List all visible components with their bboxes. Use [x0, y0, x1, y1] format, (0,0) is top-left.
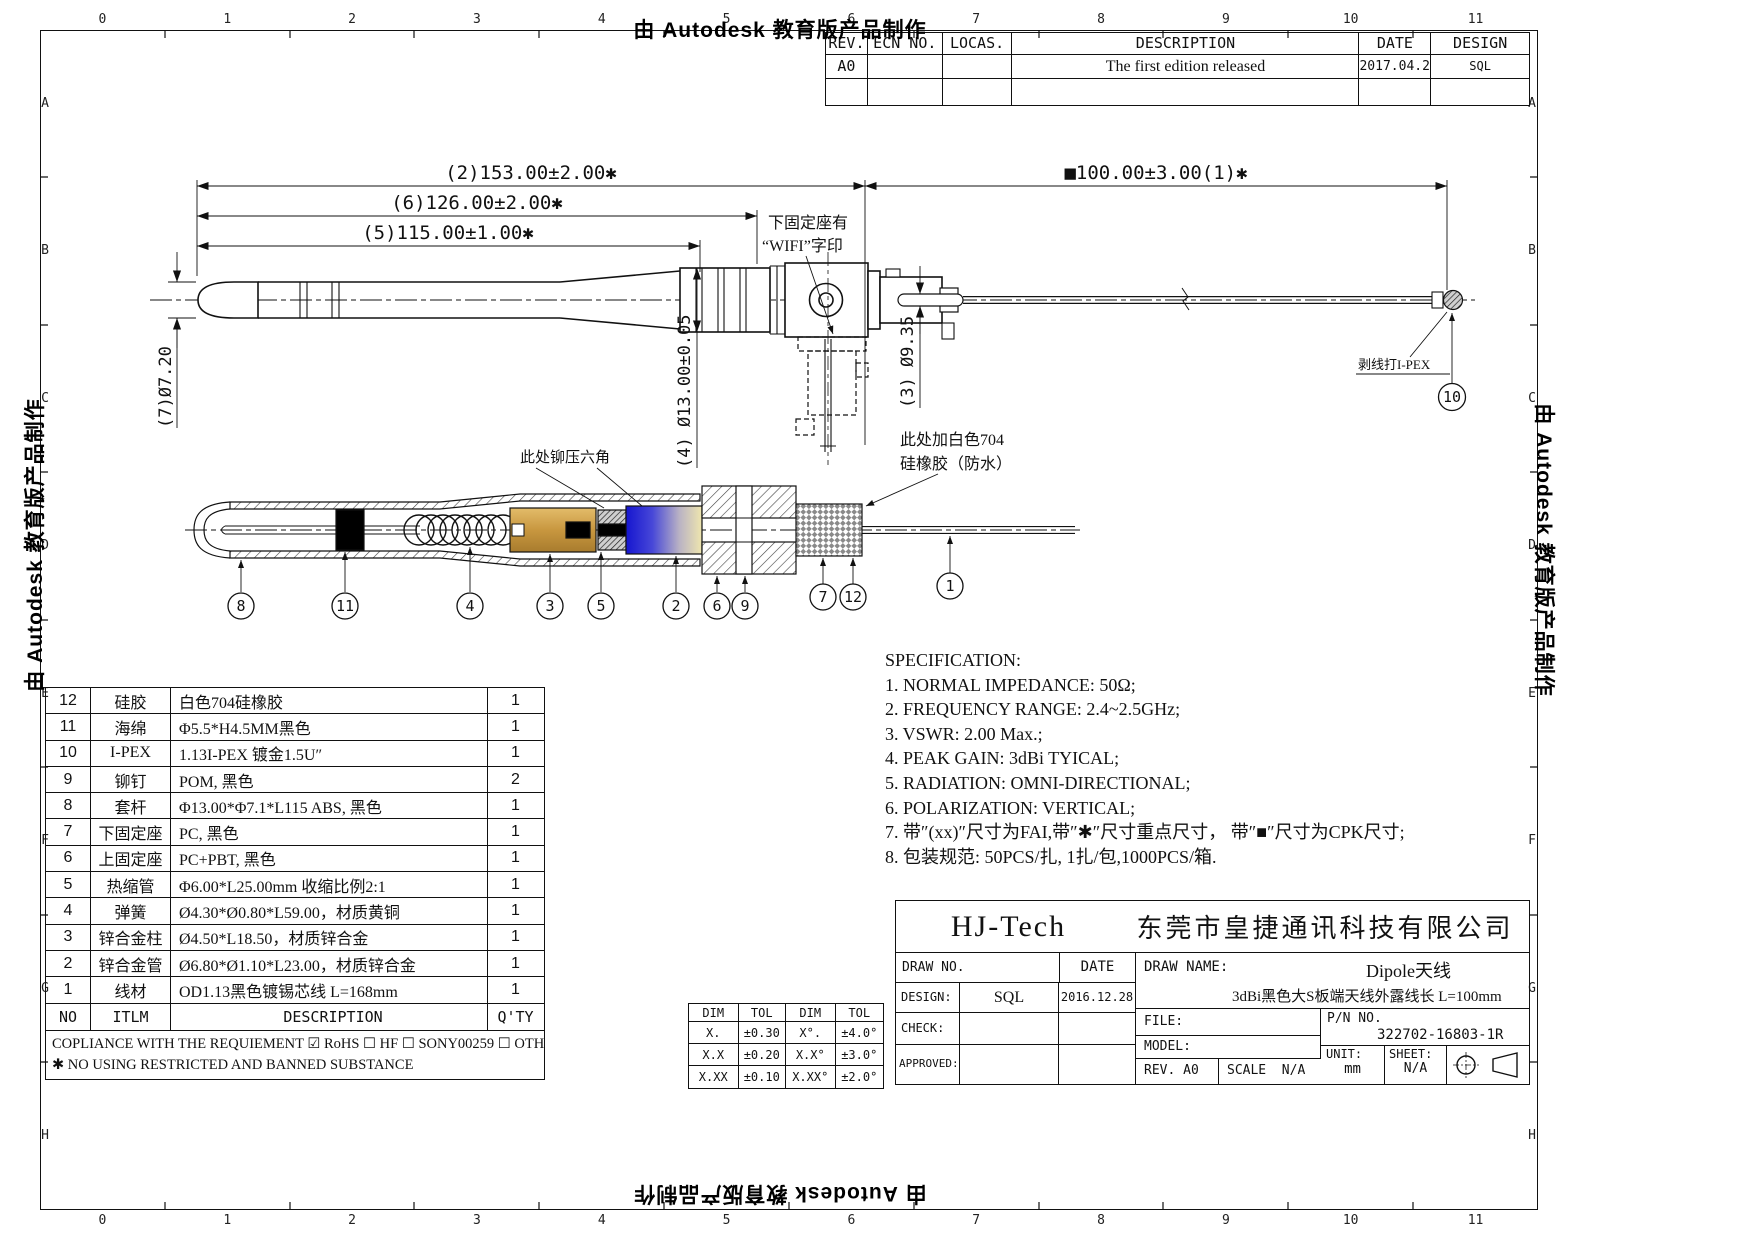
revision-col-date: DATE: [1359, 33, 1431, 55]
connector-bump: [886, 269, 900, 277]
projection-symbol-cell: [1447, 1046, 1529, 1084]
company-full-name: 东莞市皇捷通讯科技有限公司: [1121, 908, 1529, 945]
balloon-label: 7: [818, 588, 827, 606]
tol-cell: ±0.20: [739, 1044, 787, 1065]
unit-value: mm: [1321, 1061, 1384, 1077]
draw-no-label: DRAW NO.: [896, 953, 1060, 982]
bom-item: I-PEX: [91, 741, 171, 766]
projection-symbol: [1451, 1049, 1525, 1081]
file-label: FILE:: [1136, 1009, 1321, 1036]
dim-9-35: (3) Ø9.35: [898, 316, 918, 408]
autodesk-watermark-right: 由 Autodesk 教育版产品制作: [1534, 370, 1560, 730]
rev-scale-row: REV. A0 SCALE N/A: [1136, 1059, 1321, 1084]
bom-qty: 1: [488, 793, 543, 818]
tol-cell: X.XX°: [786, 1066, 836, 1088]
balloon-label: 8: [236, 597, 245, 615]
bom-item: 套杆: [91, 793, 171, 818]
unit-sheet-row: UNIT: mm SHEET: N/A: [1321, 1046, 1529, 1084]
tolerance-table: DIMTOLDIMTOL X.±0.30X°.±4.0° X.X±0.20X.X…: [688, 1003, 884, 1089]
bom-table: 12硅胶白色704硅橡胶1 11海绵Φ5.5*H4.5MM黑色1 10I-PEX…: [45, 687, 545, 1080]
bom-item: 弹簧: [91, 898, 171, 923]
model-label: MODEL:: [1136, 1036, 1321, 1059]
bom-row: 12硅胶白色704硅橡胶1: [46, 688, 544, 714]
spec-item: 2. FREQUENCY RANGE: 2.4~2.5GHz;: [885, 697, 1485, 722]
revision-locas: [943, 55, 1013, 79]
autodesk-watermark-left: 由 Autodesk 教育版产品制作: [19, 365, 45, 725]
bom-header-no: NO: [46, 1004, 91, 1030]
balloon-label: 2: [671, 597, 680, 615]
tol-cell: ±3.0°: [836, 1044, 884, 1065]
approved-row: APPROVED:: [896, 1045, 1136, 1084]
pn-value: 322702-16803-1R: [1377, 1027, 1503, 1043]
revision-design: SQL: [1431, 55, 1529, 79]
bom-item: 硅胶: [91, 688, 171, 713]
rev-cell: REV. A0: [1136, 1059, 1219, 1084]
revision-col-description: DESCRIPTION: [1012, 33, 1359, 55]
balloon-1: 1: [937, 536, 963, 599]
bom-qty: 1: [488, 925, 543, 950]
bom-item: 下固定座: [91, 819, 171, 844]
bom-row: 10I-PEX1.13I-PEX 镀金1.5U″1: [46, 741, 544, 767]
design-date: 2016.12.28: [1059, 983, 1135, 1012]
bom-row: 4弹簧Ø4.30*Ø0.80*L59.00，材质黄铜1: [46, 898, 544, 924]
revision-row: A0 The first edition released 2017.04.21…: [826, 55, 1529, 79]
bom-row: 2锌合金管Ø6.80*Ø1.10*L23.00，材质锌合金1: [46, 951, 544, 977]
antenna-side-view: [150, 252, 1475, 465]
zinc-column-core: [566, 522, 590, 538]
tol-cell: X.: [689, 1022, 739, 1043]
balloon-8: 8: [228, 560, 254, 619]
revision-ecn: [868, 55, 943, 79]
bom-no: 9: [46, 767, 91, 792]
bom-desc: 白色704硅橡胶: [171, 688, 488, 713]
silicone-note-line2: 硅橡胶（防水）: [900, 455, 1012, 473]
lower-fixing-seat: [796, 337, 868, 435]
revision-col-design: DESIGN: [1431, 33, 1529, 55]
spec-item: 7. 带″(xx)″尺寸为FAI,带″✱″尺寸重点尺寸， 带″■″尺寸为CPK尺…: [885, 820, 1485, 845]
cable-lug: [898, 294, 963, 306]
pn-cell: P/N NO. 322702-16803-1R: [1321, 1009, 1529, 1046]
bom-row: 9铆钉POM, 黑色2: [46, 767, 544, 793]
bom-qty: 1: [488, 898, 543, 923]
dim-100: ■100.00±3.00(1)✱: [1064, 162, 1247, 184]
bom-no: 12: [46, 688, 91, 713]
scale-value: N/A: [1282, 1063, 1305, 1078]
company-short-name: HJ-Tech: [896, 910, 1121, 944]
specification-title: SPECIFICATION:: [885, 648, 1485, 673]
bom-no: 8: [46, 793, 91, 818]
revision-rev: A0: [826, 55, 868, 79]
bom-desc: 1.13I-PEX 镀金1.5U″: [171, 741, 488, 766]
bom-desc: Φ13.00*Φ7.1*L115 ABS, 黑色: [171, 793, 488, 818]
balloon-7: 7: [810, 558, 836, 610]
balloon-label: 5: [596, 597, 605, 615]
bom-item: 热缩管: [91, 872, 171, 897]
tol-cell: ±4.0°: [836, 1022, 884, 1043]
balloon-label: 12: [844, 588, 862, 606]
tol-cell: ±0.10: [739, 1066, 787, 1088]
ipex-connector: [1444, 291, 1463, 310]
spec-item: 3. VSWR: 2.00 Max.;: [885, 722, 1485, 747]
pn-label: P/N NO.: [1327, 1011, 1382, 1026]
compliance-note: COPLIANCE WITH THE REQUIEMENT ☑ RoHS ☐ H…: [46, 1031, 544, 1079]
tol-cell: ±2.0°: [836, 1066, 884, 1088]
dim-7-20: (7)Ø7.20: [156, 346, 176, 428]
title-block: HJ-Tech 东莞市皇捷通讯科技有限公司 DRAW NO. DATE DESI…: [895, 900, 1530, 1085]
tolerance-header: DIMTOLDIMTOL: [689, 1004, 883, 1022]
check-date: [1059, 1013, 1135, 1044]
engineering-drawing-sheet: 01234567891011 01234567891011 ABCDEFGH A…: [0, 0, 1755, 1241]
bom-qty: 1: [488, 846, 543, 871]
approved-value: [960, 1045, 1059, 1084]
design-label: DESIGN:: [896, 983, 960, 1012]
bom-row: 5热缩管Φ6.00*L25.00mm 收缩比例2:11: [46, 872, 544, 898]
ipex-note: 剥线打I-PEX: [1358, 357, 1431, 372]
spec-item: 4. PEAK GAIN: 3dBi TYICAL;: [885, 746, 1485, 771]
antenna-section-view: [185, 486, 1080, 574]
bom-qty: 1: [488, 741, 543, 766]
scale-cell: SCALE N/A: [1219, 1059, 1321, 1084]
balloon-label: 3: [545, 597, 554, 615]
company-row: HJ-Tech 东莞市皇捷通讯科技有限公司: [896, 901, 1529, 953]
bom-desc: Φ6.00*L25.00mm 收缩比例2:1: [171, 872, 488, 897]
bom-qty: 1: [488, 714, 543, 739]
bom-desc: Ø4.30*Ø0.80*L59.00，材质黄铜: [171, 898, 488, 923]
revision-date: 2017.04.21: [1359, 55, 1431, 79]
check-label: CHECK:: [896, 1013, 960, 1044]
wifi-note-line1: 下固定座有: [768, 214, 848, 232]
ipex-boot: [1432, 292, 1443, 308]
draw-name-value: Dipole天线: [1366, 957, 1451, 983]
balloon-10: 10: [1439, 313, 1466, 411]
bom-item: 锌合金管: [91, 951, 171, 976]
heat-shrink-tube: [626, 506, 702, 554]
bom-qty: 1: [488, 819, 543, 844]
tolerance-row: X.X±0.20X.X°±3.0°: [689, 1044, 883, 1066]
silicone-note-line1: 此处加白色704: [900, 431, 1004, 449]
revision-table: REV. ECN NO. LOCAS. DESCRIPTION DATE DES…: [825, 32, 1530, 106]
rev-label: REV.: [1144, 1063, 1175, 1078]
bom-row: 3锌合金柱Ø4.50*L18.50，材质锌合金1: [46, 925, 544, 951]
revision-description: [1012, 79, 1359, 105]
bom-row: 8套杆Φ13.00*Φ7.1*L115 ABS, 黑色1: [46, 793, 544, 819]
spec-item: 1. NORMAL IMPEDANCE: 50Ω;: [885, 673, 1485, 698]
bom-no: 5: [46, 872, 91, 897]
specification-block: SPECIFICATION: 1. NORMAL IMPEDANCE: 50Ω;…: [885, 648, 1485, 869]
bom-item: 上固定座: [91, 846, 171, 871]
design-value: SQL: [960, 983, 1059, 1012]
balloon-6: 6: [704, 576, 730, 619]
bom-row: 1线材OD1.13黑色镀锡芯线 L=168mm1: [46, 977, 544, 1003]
tol-cell: X.XX: [689, 1066, 739, 1088]
design-row: DESIGN: SQL 2016.12.28: [896, 983, 1136, 1013]
sheet-value: N/A: [1385, 1061, 1446, 1076]
balloon-label: 6: [712, 597, 721, 615]
bom-header-row: NOITLMDESCRIPTIONQ'TY: [46, 1004, 544, 1031]
dim-13: (4) Ø13.00±0.05: [675, 314, 695, 468]
dim-126: (6)126.00±2.00✱: [391, 192, 563, 214]
draw-name-label: DRAW NAME:: [1144, 959, 1228, 975]
balloon-11: 11: [332, 552, 358, 619]
spec-item: 5. RADIATION: OMNI-DIRECTIONAL;: [885, 771, 1485, 796]
autodesk-watermark-bottom: 由 Autodesk 教育版产品制作: [600, 1184, 960, 1210]
balloon-label: 11: [336, 597, 354, 615]
balloon-label: 1: [945, 577, 954, 595]
connector-flange: [868, 271, 880, 329]
bom-no: 11: [46, 714, 91, 739]
date-label: DATE: [1060, 953, 1135, 982]
connector-foot: [942, 323, 954, 339]
tol-cell: X.X: [689, 1044, 739, 1065]
bom-qty: 1: [488, 872, 543, 897]
bom-desc: POM, 黑色: [171, 767, 488, 792]
autodesk-watermark-top: 由 Autodesk 教育版产品制作: [600, 14, 960, 40]
balloon-label: 4: [465, 597, 474, 615]
bom-header-item: ITLM: [91, 1004, 171, 1030]
bom-no: 7: [46, 819, 91, 844]
balloon-label: 9: [740, 597, 749, 615]
balloon-12: 12: [840, 558, 866, 610]
bom-row: 11海绵Φ5.5*H4.5MM黑色1: [46, 714, 544, 740]
bom-no: 4: [46, 898, 91, 923]
dim-115: (5)115.00±1.00✱: [362, 222, 534, 244]
compliance-line2: ✱ NO USING RESTRICTED AND BANNED SUBSTAN…: [52, 1055, 538, 1076]
tol-h: TOL: [836, 1004, 884, 1021]
bom-desc: Ø4.50*L18.50，材质锌合金: [171, 925, 488, 950]
bom-no: 1: [46, 977, 91, 1002]
spec-item: 8. 包装规范: 50PCS/扎, 1扎/包,1000PCS/箱.: [885, 845, 1485, 870]
tol-cell: X°.: [786, 1022, 836, 1043]
sheet-label: SHEET:: [1385, 1046, 1446, 1061]
revision-row-empty: [826, 79, 1529, 105]
sponge-block: [336, 510, 364, 550]
approved-label: APPROVED:: [896, 1045, 960, 1084]
silicone-block: [796, 504, 862, 556]
hinge-block: [785, 263, 868, 337]
rivet: [736, 486, 752, 574]
tol-h: DIM: [689, 1004, 739, 1021]
bom-desc: OD1.13黑色镀锡芯线 L=168mm: [171, 977, 488, 1002]
bom-item: 锌合金柱: [91, 925, 171, 950]
revision-rev: [826, 79, 868, 105]
check-row: CHECK:: [896, 1013, 1136, 1045]
draw-name-subtitle: 3dBi黑色大S板端天线外露线长 L=100mm: [1232, 985, 1502, 1006]
sheet-cell: SHEET: N/A: [1385, 1046, 1447, 1084]
spec-item: 6. POLARIZATION: VERTICAL;: [885, 796, 1485, 821]
hex-crimp-core: [598, 524, 626, 536]
bom-row: 6上固定座PC+PBT, 黑色1: [46, 846, 544, 872]
bom-qty: 1: [488, 951, 543, 976]
bom-qty: 1: [488, 688, 543, 713]
dim-153: (2)153.00±2.00✱: [445, 162, 617, 184]
bom-no: 6: [46, 846, 91, 871]
bom-no: 2: [46, 951, 91, 976]
revision-description: The first edition released: [1012, 55, 1359, 79]
tol-cell: ±0.30: [739, 1022, 787, 1043]
bom-qty: 2: [488, 767, 543, 792]
check-value: [960, 1013, 1059, 1044]
wifi-note-line2: “WIFI”字印: [762, 237, 843, 255]
bom-item: 铆钉: [91, 767, 171, 792]
bom-item: 线材: [91, 977, 171, 1002]
tol-h: DIM: [786, 1004, 836, 1021]
revision-locas: [943, 79, 1013, 105]
bom-no: 3: [46, 925, 91, 950]
antenna-cap: [198, 282, 258, 318]
balloon-9: 9: [732, 576, 758, 619]
bom-desc: Ø6.80*Ø1.10*L23.00，材质锌合金: [171, 951, 488, 976]
bom-desc: PC, 黑色: [171, 819, 488, 844]
tol-h: TOL: [739, 1004, 787, 1021]
draw-no-row: DRAW NO. DATE: [896, 953, 1136, 983]
tolerance-row: X.±0.30X°.±4.0°: [689, 1022, 883, 1044]
compliance-line1: COPLIANCE WITH THE REQUIEMENT ☑ RoHS ☐ H…: [52, 1034, 538, 1055]
scale-label: SCALE: [1227, 1063, 1266, 1078]
bom-qty: 1: [488, 977, 543, 1002]
bom-desc: PC+PBT, 黑色: [171, 846, 488, 871]
approved-date: [1059, 1045, 1135, 1084]
rev-value: A0: [1183, 1063, 1199, 1078]
hex-crimp-note: 此处铆压六角: [520, 449, 610, 466]
unit-cell: UNIT: mm: [1321, 1046, 1385, 1084]
balloon-label: 10: [1443, 388, 1461, 406]
bom-no: 10: [46, 741, 91, 766]
bom-header-qty: Q'TY: [488, 1004, 543, 1030]
bom-row: 7下固定座PC, 黑色1: [46, 819, 544, 845]
tolerance-row: X.XX±0.10X.XX°±2.0°: [689, 1066, 883, 1088]
zinc-column-slot: [512, 524, 524, 536]
draw-name-cell: DRAW NAME: Dipole天线 3dBi黑色大S板端天线外露线长 L=1…: [1136, 953, 1529, 1009]
revision-date: [1359, 79, 1431, 105]
bom-desc: Φ5.5*H4.5MM黑色: [171, 714, 488, 739]
bom-item: 海绵: [91, 714, 171, 739]
tol-cell: X.X°: [786, 1044, 836, 1065]
revision-ecn: [868, 79, 943, 105]
unit-label: UNIT:: [1321, 1046, 1384, 1061]
cable-break: [1182, 288, 1189, 310]
bom-header-desc: DESCRIPTION: [171, 1004, 488, 1030]
revision-design: [1431, 79, 1529, 105]
